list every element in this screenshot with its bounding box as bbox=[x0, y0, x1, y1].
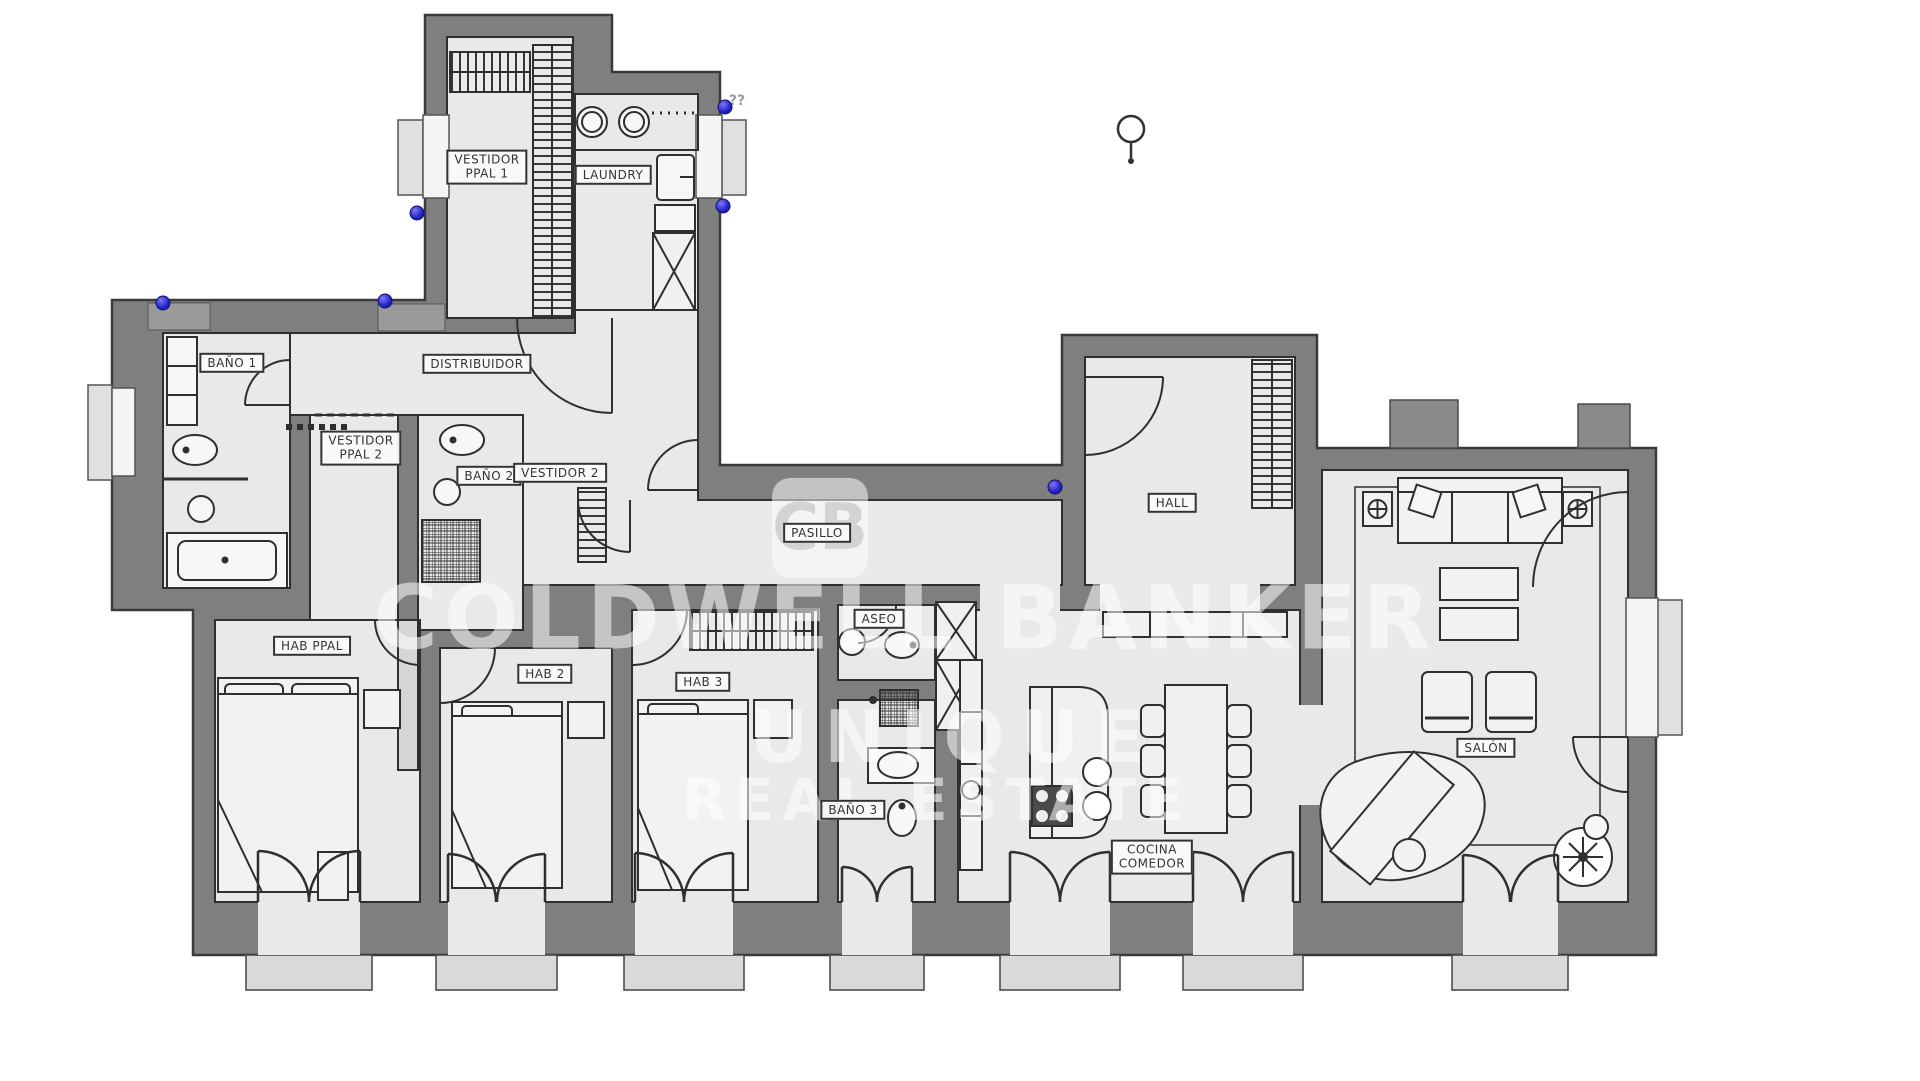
label-layer: ?? VESTIDOR PPAL 1LAUNDRYBAÑO 1DISTRIBUI… bbox=[0, 0, 1920, 1081]
room-label-bano-3: BAÑO 3 bbox=[820, 800, 885, 820]
room-label-vestidor-2: VESTIDOR 2 bbox=[513, 463, 607, 483]
room-label-bano-2: BAÑO 2 bbox=[456, 466, 521, 486]
room-label-bano-1: BAÑO 1 bbox=[199, 353, 264, 373]
room-label-hab-3: HAB 3 bbox=[675, 672, 730, 692]
room-label-hall: HALL bbox=[1148, 493, 1197, 513]
plumbing-marker-icon bbox=[156, 296, 171, 311]
plumbing-marker-icon bbox=[716, 199, 731, 214]
floor-plan-page: CB COLDWELL BANKER UNIQUE REAL ESTATE ??… bbox=[0, 0, 1920, 1081]
plumbing-marker-icon bbox=[1048, 480, 1063, 495]
room-label-cocina-comedor: COCINA COMEDOR bbox=[1111, 840, 1193, 875]
room-label-aseo: ASEO bbox=[854, 609, 905, 629]
plumbing-marker-icon bbox=[410, 206, 425, 221]
room-label-hab-ppal: HAB PPAL bbox=[273, 636, 351, 656]
room-label-laundry: LAUNDRY bbox=[575, 165, 652, 185]
room-label-vestidor-ppal-1: VESTIDOR PPAL 1 bbox=[446, 150, 527, 185]
room-label-hab-2: HAB 2 bbox=[517, 664, 572, 684]
plumbing-marker-icon bbox=[378, 294, 393, 309]
room-label-pasillo: PASILLO bbox=[783, 523, 851, 543]
plumbing-marker-icon bbox=[718, 100, 733, 115]
room-label-vestidor-ppal-2: VESTIDOR PPAL 2 bbox=[320, 431, 401, 466]
room-label-distribuidor: DISTRIBUIDOR bbox=[422, 354, 531, 374]
room-label-salon: SALÓN bbox=[1456, 738, 1515, 758]
